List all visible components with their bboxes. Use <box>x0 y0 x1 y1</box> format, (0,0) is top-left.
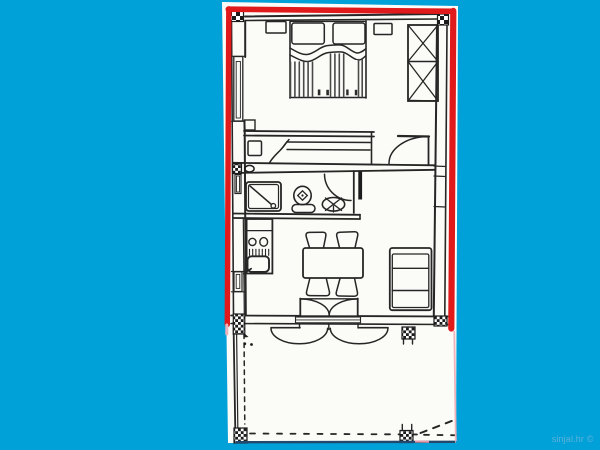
svg-text:sinjal.hr ©: sinjal.hr © <box>552 434 594 444</box>
